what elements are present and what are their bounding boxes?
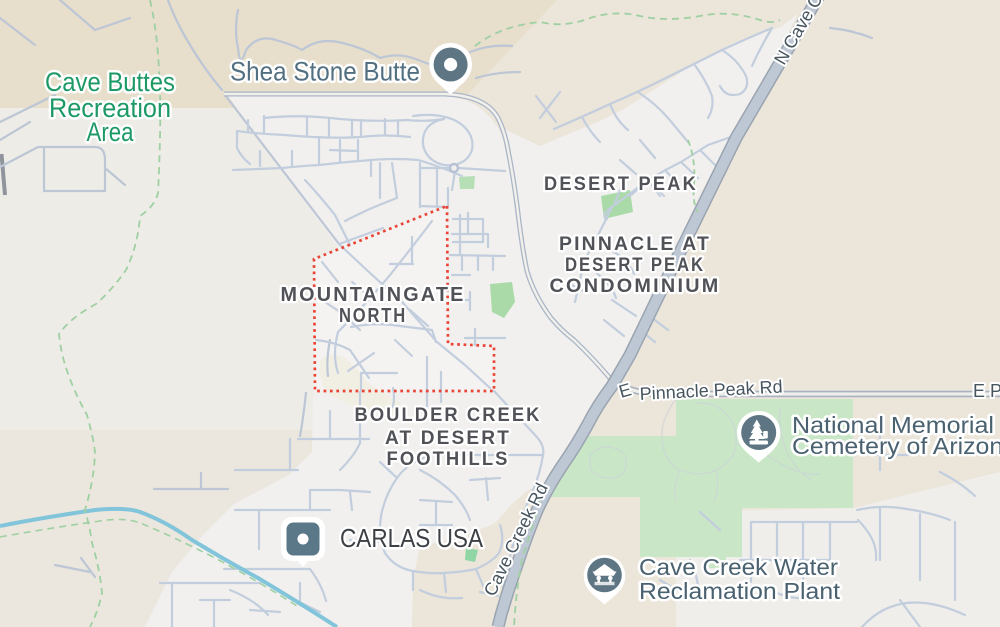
svg-text:Shea Stone Butte: Shea Stone Butte [230, 57, 420, 87]
svg-text:NORTH: NORTH [339, 305, 407, 327]
svg-text:CONDOMINIUM: CONDOMINIUM [550, 275, 721, 297]
svg-text:Cave Creek Water: Cave Creek Water [639, 554, 838, 580]
svg-text:Cemetery of Arizona: Cemetery of Arizona [792, 433, 1000, 459]
svg-text:AT DESERT: AT DESERT [385, 427, 511, 449]
svg-text:DESERT PEAK: DESERT PEAK [544, 173, 698, 195]
svg-text:PINNACLE AT: PINNACLE AT [559, 233, 711, 255]
svg-text:FOOTHILLS: FOOTHILLS [387, 448, 510, 470]
svg-text:Reclamation Plant: Reclamation Plant [639, 578, 840, 604]
svg-text:E P: E P [973, 381, 1000, 401]
svg-text:DESERT PEAK: DESERT PEAK [565, 254, 705, 276]
svg-text:CARLAS USA: CARLAS USA [340, 525, 483, 553]
svg-text:Area: Area [87, 117, 134, 147]
svg-text:MOUNTAINGATE: MOUNTAINGATE [281, 284, 466, 306]
svg-text:BOULDER CREEK: BOULDER CREEK [355, 404, 542, 426]
